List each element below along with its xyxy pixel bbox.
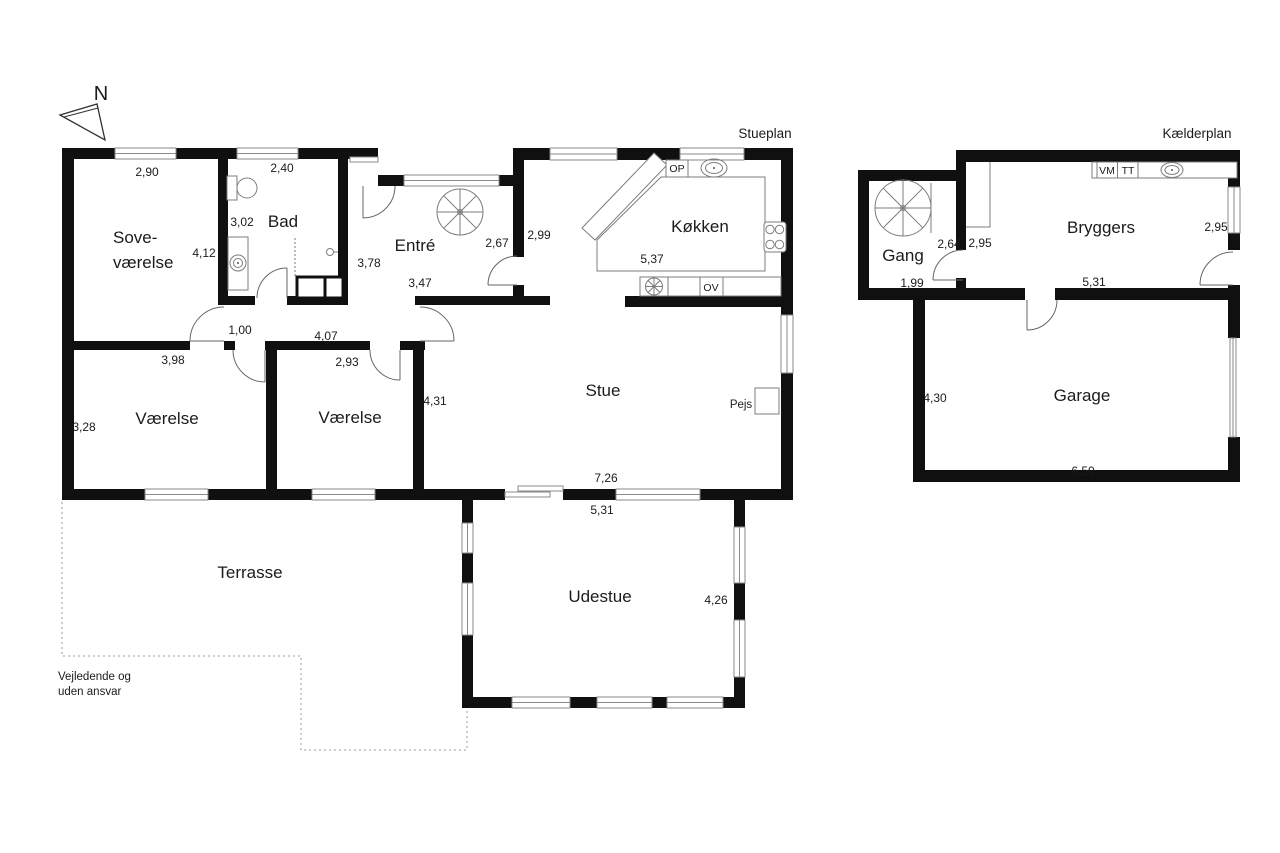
terrace-outline (62, 502, 467, 750)
room-label-sovevaerelse-line2: værelse (113, 253, 173, 272)
fireplace-box (755, 388, 779, 414)
measurement-udestue-width: 5,31 (590, 503, 614, 517)
kitchen-fixtures (582, 153, 786, 414)
measurement-vaerelse1-width: 3,98 (161, 353, 185, 367)
measurement-entre-width: 3,47 (408, 276, 432, 290)
room-label-bad: Bad (268, 212, 298, 231)
sliding-door-panel (505, 492, 550, 497)
measurement-gang-width: 1,99 (900, 276, 924, 290)
front-door-threshold (350, 157, 378, 162)
entre-spiral-stair-icon (437, 189, 483, 235)
measurement-bryggers-width: 5,31 (1082, 275, 1106, 289)
hall-stue-door-arc (420, 307, 454, 341)
bryggers-exterior-door-arc (1200, 252, 1233, 285)
measurement-garage-width: 6,50 (1071, 464, 1095, 478)
disclaimer-line1: Vejledende og (58, 671, 131, 683)
floor-plan-svg: N (0, 0, 1280, 853)
bad-door-arc (257, 268, 287, 298)
measurement-garage-height: 4,30 (923, 391, 947, 405)
room-label-koekken: Køkken (671, 217, 729, 236)
measurement-hall-width: 1,00 (228, 323, 252, 337)
stair-shaft (966, 162, 990, 227)
fireplace-label: Pejs (730, 399, 753, 411)
measurement-udestue-height: 4,26 (704, 593, 728, 607)
measurement-stue-left: 4,31 (423, 394, 447, 408)
measurement-entre-right: 2,67 (485, 236, 509, 250)
room-label-stue: Stue (586, 381, 621, 400)
room-label-bryggers: Bryggers (1067, 218, 1135, 237)
oven-label: OV (703, 282, 718, 294)
measurement-bad-height: 3,02 (230, 215, 254, 229)
north-arrow-icon: N (60, 83, 108, 140)
north-letter: N (94, 83, 108, 105)
bathroom-fixtures (227, 176, 343, 298)
measurement-koekken-left: 2,99 (527, 228, 551, 242)
dryer-label: TT (1122, 165, 1135, 177)
measurement-bryggers-left: 2,95 (968, 236, 992, 250)
measurement-bryggers-right: 2,95 (1204, 220, 1228, 234)
measurement-sove-width: 2,90 (135, 165, 159, 179)
shower-valve-icon (327, 249, 334, 256)
bryggers-garage-door-arc (1027, 300, 1057, 330)
entre-koekken-door-arc (488, 256, 517, 285)
kaelderplan-title: Kælderplan (1162, 126, 1231, 141)
washing-machine-label: VM (1099, 165, 1115, 177)
stueplan-title: Stueplan (738, 126, 791, 141)
room-label-sovevaerelse-line1: Sove- (113, 228, 157, 247)
measurement-vaerelse1-height: 3,28 (72, 420, 96, 434)
room-label-vaerelse2: Værelse (318, 408, 381, 427)
gang-bryggers-door-arc (933, 250, 963, 280)
room-label-gang: Gang (882, 246, 924, 265)
front-door-arc (363, 186, 395, 218)
floor-plan-page: N (0, 0, 1280, 853)
toilet-tank-icon (227, 176, 237, 200)
measurement-bad-width: 2,40 (270, 161, 294, 175)
room-label-vaerelse1: Værelse (135, 409, 198, 428)
kaelderplan-walls (858, 150, 1240, 482)
room-label-terrasse: Terrasse (217, 563, 282, 582)
dishwasher-label: OP (669, 163, 684, 175)
vaerelse2-door-arc (370, 350, 400, 380)
room-label-garage: Garage (1054, 386, 1111, 405)
measurement-entre-height: 3,78 (357, 256, 381, 270)
measurement-koekken-width: 5,37 (640, 252, 664, 266)
room-label-entre: Entré (395, 236, 436, 255)
measurement-sove-height: 4,12 (192, 246, 216, 260)
vaerelse1-door-arc (233, 350, 265, 382)
closet-box (297, 277, 325, 298)
measurement-hall-length: 4,07 (314, 329, 338, 343)
sliding-door-panel (518, 486, 563, 491)
disclaimer-line2: uden ansvar (58, 686, 121, 698)
measurement-gang-top: 2,64 (937, 237, 961, 251)
closet-box (325, 277, 343, 298)
measurement-stue-width: 7,26 (594, 471, 618, 485)
measurement-vaerelse2-width: 2,93 (335, 355, 359, 369)
toilet-bowl-icon (237, 178, 257, 198)
room-label-udestue: Udestue (568, 587, 631, 606)
sovevaerelse-door-arc (190, 307, 224, 341)
